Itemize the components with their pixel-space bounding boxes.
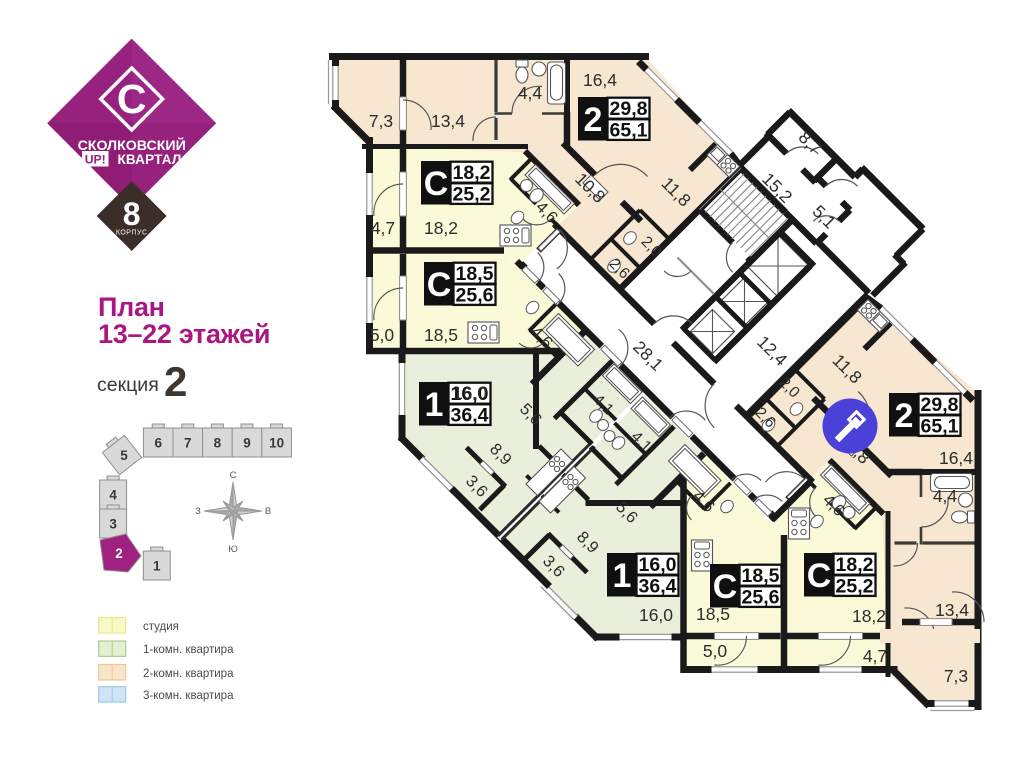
svg-text:18,2: 18,2 <box>453 162 491 184</box>
svg-text:16,0: 16,0 <box>639 605 673 625</box>
svg-text:25,6: 25,6 <box>742 587 780 609</box>
svg-text:13–22 этажей: 13–22 этажей <box>98 319 270 349</box>
svg-text:25,2: 25,2 <box>836 576 874 598</box>
svg-text:3-комн. квартира: 3-комн. квартира <box>143 690 234 702</box>
svg-text:2: 2 <box>115 546 123 561</box>
svg-text:7,3: 7,3 <box>944 666 968 686</box>
svg-text:UP!: UP! <box>85 153 106 167</box>
svg-text:16,0: 16,0 <box>453 383 487 403</box>
svg-text:6: 6 <box>154 436 162 451</box>
svg-text:13,4: 13,4 <box>431 111 465 131</box>
svg-text:2-комн. квартира: 2-комн. квартира <box>143 668 234 680</box>
svg-text:65,1: 65,1 <box>610 120 648 142</box>
svg-text:7: 7 <box>184 436 192 451</box>
svg-text:10: 10 <box>269 436 284 451</box>
svg-text:25,2: 25,2 <box>453 184 491 206</box>
svg-text:16,4: 16,4 <box>939 448 973 468</box>
svg-text:29,8: 29,8 <box>921 394 959 416</box>
svg-text:секция: секция <box>97 374 159 396</box>
svg-text:4,7: 4,7 <box>371 218 395 238</box>
svg-text:С: С <box>807 557 832 595</box>
svg-text:36,4: 36,4 <box>639 576 677 598</box>
svg-text:18,5: 18,5 <box>456 263 494 285</box>
svg-text:65,1: 65,1 <box>921 416 959 438</box>
svg-text:1-комн. квартира: 1-комн. квартира <box>143 644 234 656</box>
svg-text:7,3: 7,3 <box>369 111 393 131</box>
svg-text:5,0: 5,0 <box>703 641 728 661</box>
svg-text:16,0: 16,0 <box>639 554 677 576</box>
svg-text:З: З <box>195 506 201 517</box>
svg-text:4,4: 4,4 <box>518 83 543 103</box>
svg-text:18,5: 18,5 <box>424 325 458 345</box>
svg-text:КВАРТАЛ: КВАРТАЛ <box>117 152 181 167</box>
svg-text:студия: студия <box>143 621 179 633</box>
svg-text:1: 1 <box>425 386 444 424</box>
svg-text:18,2: 18,2 <box>424 218 458 238</box>
svg-text:КОРПУС: КОРПУС <box>116 230 148 237</box>
svg-text:4,7: 4,7 <box>863 646 887 666</box>
svg-text:Ю: Ю <box>228 544 238 555</box>
svg-text:2: 2 <box>164 358 187 405</box>
svg-text:13,4: 13,4 <box>935 600 969 620</box>
svg-text:С: С <box>713 568 738 606</box>
svg-text:18,2: 18,2 <box>836 554 874 576</box>
svg-text:8: 8 <box>123 196 141 232</box>
svg-text:С: С <box>230 470 237 481</box>
svg-text:С: С <box>427 266 452 304</box>
svg-text:4,4: 4,4 <box>933 486 958 506</box>
svg-text:4: 4 <box>109 488 117 503</box>
svg-text:29,8: 29,8 <box>610 98 648 120</box>
svg-text:25,6: 25,6 <box>456 285 494 307</box>
svg-text:16,4: 16,4 <box>583 70 617 90</box>
svg-text:5,0: 5,0 <box>370 325 395 345</box>
svg-text:36,4: 36,4 <box>451 405 489 427</box>
svg-text:План: План <box>98 292 165 322</box>
svg-text:С: С <box>424 165 449 203</box>
svg-text:С: С <box>117 76 147 122</box>
svg-text:5: 5 <box>120 448 128 463</box>
svg-text:В: В <box>265 506 271 517</box>
svg-text:2: 2 <box>895 397 914 435</box>
svg-text:9: 9 <box>243 436 251 451</box>
svg-text:8: 8 <box>214 436 222 451</box>
svg-text:18,5: 18,5 <box>742 565 780 587</box>
svg-text:1: 1 <box>153 559 161 574</box>
svg-text:3: 3 <box>109 517 117 532</box>
svg-text:2: 2 <box>584 101 603 139</box>
svg-text:18,2: 18,2 <box>852 606 886 626</box>
svg-text:1: 1 <box>613 557 632 595</box>
